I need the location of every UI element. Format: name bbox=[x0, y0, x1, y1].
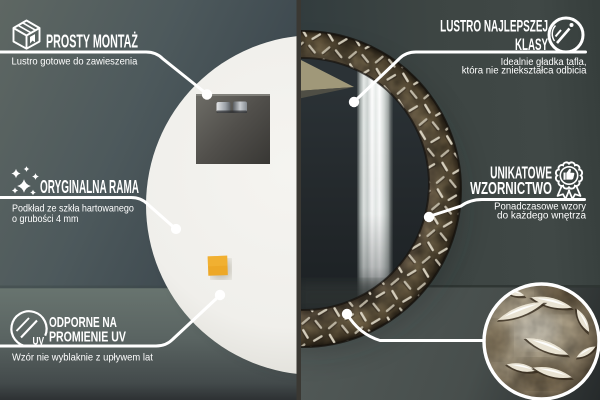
svg-text:ORYGINALNA RAMA: ORYGINALNA RAMA bbox=[40, 178, 139, 198]
svg-text:do każdego wnętrza: do każdego wnętrza bbox=[497, 210, 586, 221]
svg-text:PROSTY MONTAŻ: PROSTY MONTAŻ bbox=[46, 32, 138, 53]
svg-text:PROMIENIE UV: PROMIENIE UV bbox=[49, 328, 126, 345]
svg-text:Wzór nie wyblaknie z upływem l: Wzór nie wyblaknie z upływem lat bbox=[12, 352, 153, 364]
svg-text:która nie zniekształca odbicia: która nie zniekształca odbicia bbox=[462, 65, 587, 76]
svg-text:WZORNICTWO: WZORNICTWO bbox=[470, 180, 552, 199]
svg-text:KLASY: KLASY bbox=[515, 34, 549, 54]
svg-text:Lustro gotowe do zawieszenia: Lustro gotowe do zawieszenia bbox=[12, 56, 138, 68]
svg-text:UV: UV bbox=[33, 335, 45, 348]
svg-text:LUSTRO NAJLEPSZEJ: LUSTRO NAJLEPSZEJ bbox=[440, 15, 548, 35]
svg-text:o grubości 4 mm: o grubości 4 mm bbox=[12, 213, 78, 225]
